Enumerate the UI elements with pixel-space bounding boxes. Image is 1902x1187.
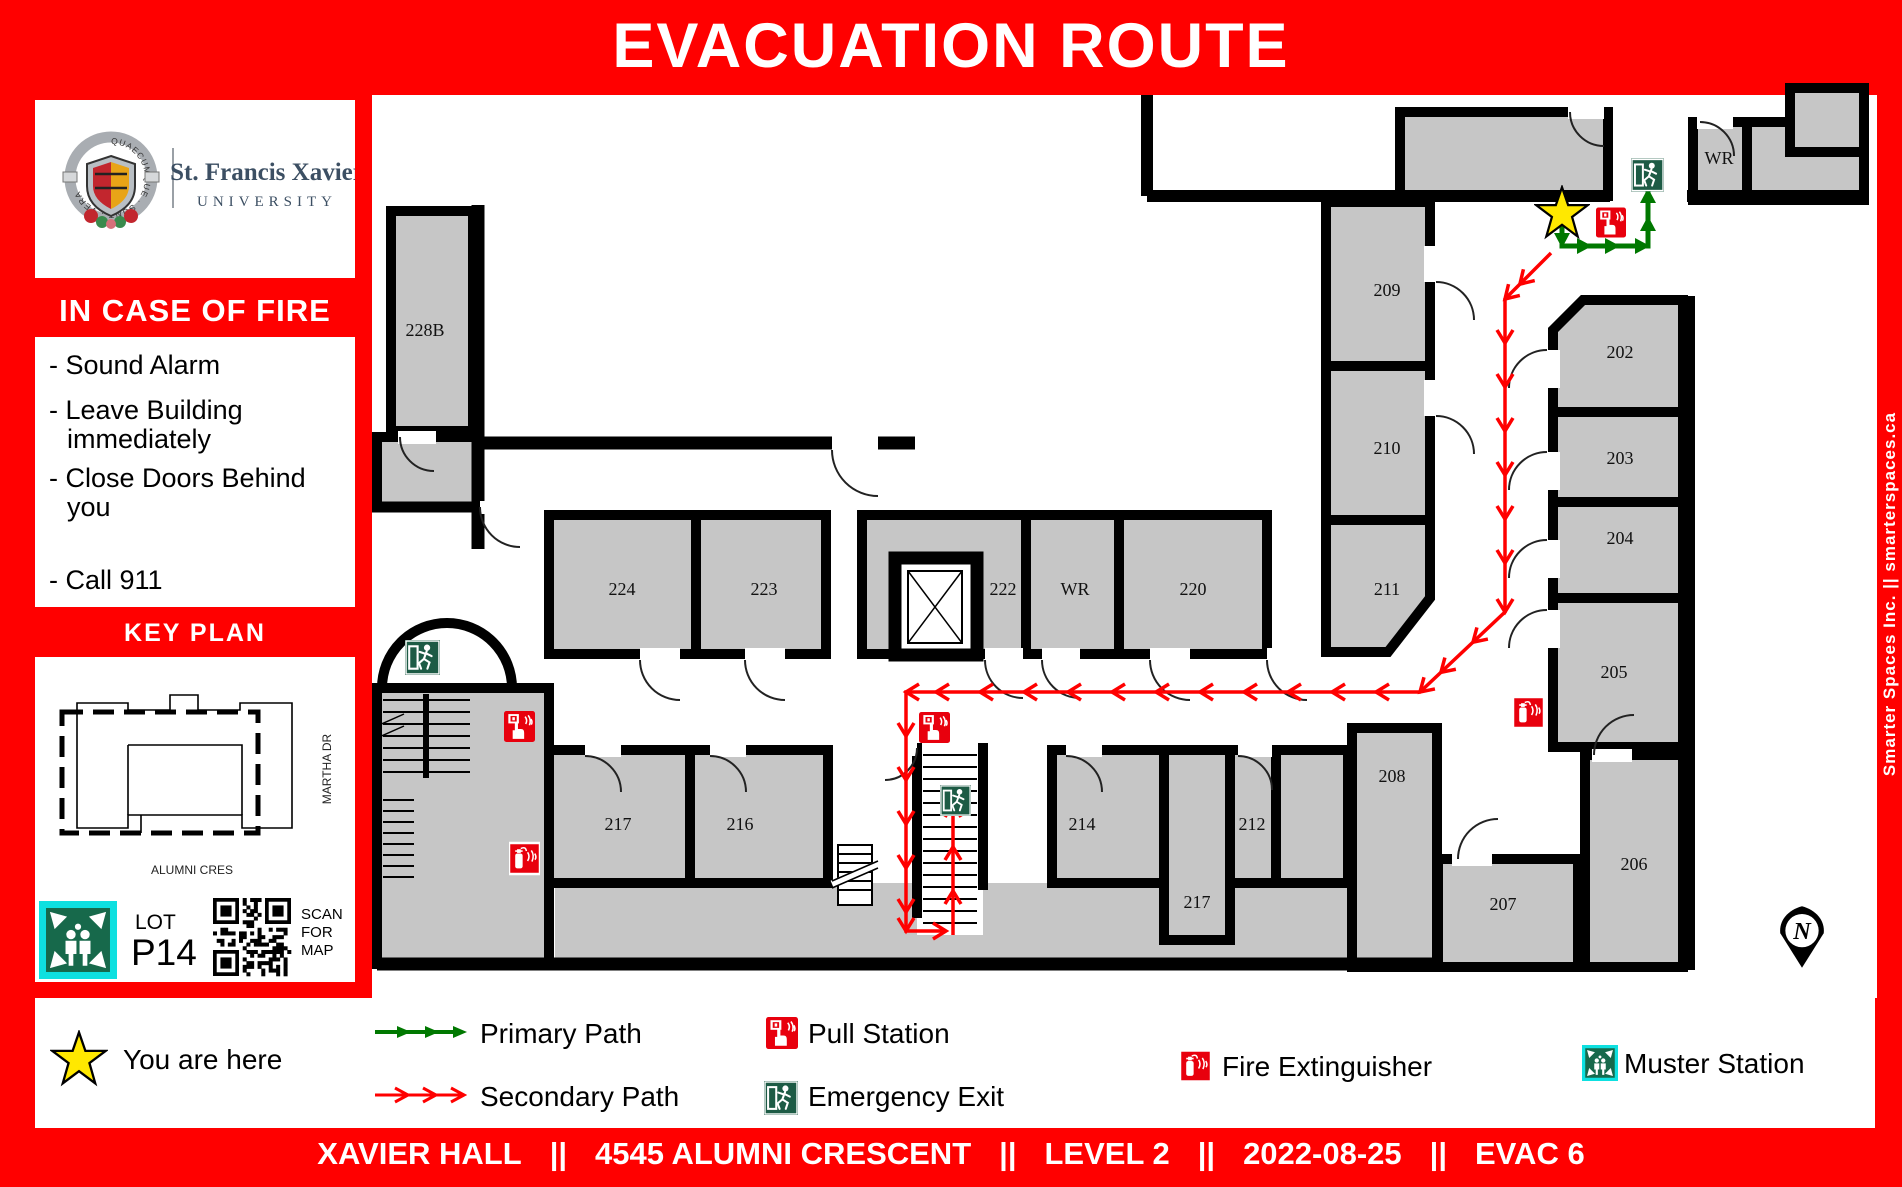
brand-rail: Smarter Spaces Inc. || smarterspaces.ca	[1877, 0, 1902, 1187]
room-label-224: 224	[609, 579, 636, 599]
key-plan-panel: MARTHA DR ALUMNI CRES LOT P14 SCAN FOR M…	[35, 657, 355, 982]
footer-segment: 4545 ALUMNI CRESCENT	[595, 1136, 971, 1172]
footer-bar: XAVIER HALL||4545 ALUMNI CRESCENT||LEVEL…	[25, 1128, 1877, 1180]
room-label-205: 205	[1601, 662, 1628, 682]
legend-fire-extinguisher-icon	[1180, 1047, 1211, 1085]
lot-value: P14	[131, 932, 197, 973]
legend-fire-extinguisher-label: Fire Extinguisher	[1222, 1051, 1432, 1083]
room-label-212: 212	[1239, 814, 1266, 834]
university-logo-panel: QUAECUMQUE · SUNT · VERA St. Francis Xav…	[35, 100, 355, 278]
legend-muster-station-icon	[1582, 1045, 1618, 1081]
room-label-202: 202	[1607, 342, 1634, 362]
emergency-exit-icon	[405, 640, 440, 675]
qr-caption-2: FOR	[301, 924, 333, 941]
legend-muster-station-label: Muster Station	[1624, 1048, 1805, 1080]
fire-extinguisher-icon	[509, 843, 540, 874]
fire-extinguisher-icon	[1513, 697, 1544, 728]
room-label-203: 203	[1607, 448, 1634, 468]
fire-instructions-panel: - Sound Alarm- Leave Buildingimmediately…	[35, 337, 355, 607]
room-label-228b: 228B	[405, 320, 444, 340]
room-label-216: 216	[727, 814, 754, 834]
legend-primary-path-icon	[375, 1021, 467, 1043]
footer-segment: LEVEL 2	[1045, 1136, 1170, 1172]
legend-secondary-path-label: Secondary Path	[480, 1081, 679, 1113]
lot-label: LOT	[135, 911, 176, 934]
room-label-217: 217	[605, 814, 632, 834]
room-208	[1352, 728, 1437, 967]
pull-station-icon	[1596, 208, 1626, 238]
fire-instruction-item: - Sound Alarm	[49, 351, 345, 380]
page-title: EVACUATION ROUTE	[0, 6, 1902, 86]
room-label-223: 223	[751, 579, 778, 599]
room-216	[690, 750, 828, 883]
pull-station-icon	[919, 712, 950, 743]
room-label-211: 211	[1374, 579, 1400, 599]
room-label-209: 209	[1374, 280, 1401, 300]
room-label-214: 214	[1069, 814, 1096, 834]
room-label-220: 220	[1180, 579, 1207, 599]
key-plan-heading: KEY PLAN	[35, 619, 355, 648]
room-label-wr: WR	[1061, 579, 1090, 599]
legend-emergency-exit-label: Emergency Exit	[808, 1081, 1004, 1113]
brand-rail-text: Smarter Spaces Inc. || smarterspaces.ca	[1880, 411, 1900, 775]
qr-caption-1: SCAN	[301, 906, 343, 923]
footer-separator: ||	[1430, 1136, 1447, 1172]
in-case-of-fire-heading: IN CASE OF FIRE	[35, 293, 355, 329]
university-subname: UNIVERSITY	[197, 194, 337, 210]
fire-instruction-item: - Leave Buildingimmediately	[49, 396, 345, 454]
footer-separator: ||	[550, 1136, 567, 1172]
room-label-217: 217	[1184, 892, 1211, 912]
room-label-206: 206	[1621, 854, 1648, 874]
qr-caption-3: MAP	[301, 942, 334, 959]
room-label-204: 204	[1607, 528, 1634, 548]
university-crest-icon: QUAECUMQUE · SUNT · VERA	[63, 136, 159, 229]
footer-separator: ||	[999, 1136, 1016, 1172]
emergency-exit-icon	[1631, 159, 1664, 192]
footer-separator: ||	[1198, 1136, 1215, 1172]
legend-pull-station-label: Pull Station	[808, 1018, 950, 1050]
room-label-wr: WR	[1705, 148, 1734, 168]
fire-instruction-item: - Call 911	[49, 566, 345, 595]
key-plan-map	[62, 695, 292, 833]
legend-secondary-path-icon	[375, 1084, 467, 1106]
university-name: St. Francis Xavier	[170, 159, 355, 186]
legend-panel: You are here Primary Path Secondary Path…	[35, 998, 1875, 1128]
fire-instruction-item: - Close Doors Behindyou	[49, 464, 345, 522]
legend-star-icon	[50, 1030, 108, 1088]
room-label-222: 222	[990, 579, 1017, 599]
room-204	[1553, 502, 1683, 598]
pull-station-icon	[504, 711, 535, 742]
footer-segment: EVAC 6	[1475, 1136, 1585, 1172]
legend-you-are-here-label: You are here	[123, 1044, 282, 1076]
street-label-alumni: ALUMNI CRES	[151, 863, 233, 877]
muster-station-icon	[39, 901, 117, 979]
legend-pull-station-icon	[766, 1016, 798, 1050]
legend-emergency-exit-icon	[764, 1078, 798, 1118]
room-label-210: 210	[1374, 438, 1401, 458]
emergency-exit-icon	[940, 785, 971, 816]
footer-segment: XAVIER HALL	[317, 1136, 521, 1172]
footer-segment: 2022-08-25	[1243, 1136, 1402, 1172]
room-label-208: 208	[1379, 766, 1406, 786]
room-label-207: 207	[1490, 894, 1517, 914]
scan-for-map-qr-code	[213, 898, 291, 976]
legend-primary-path-label: Primary Path	[480, 1018, 642, 1050]
street-label-martha: MARTHA DR	[320, 733, 334, 804]
